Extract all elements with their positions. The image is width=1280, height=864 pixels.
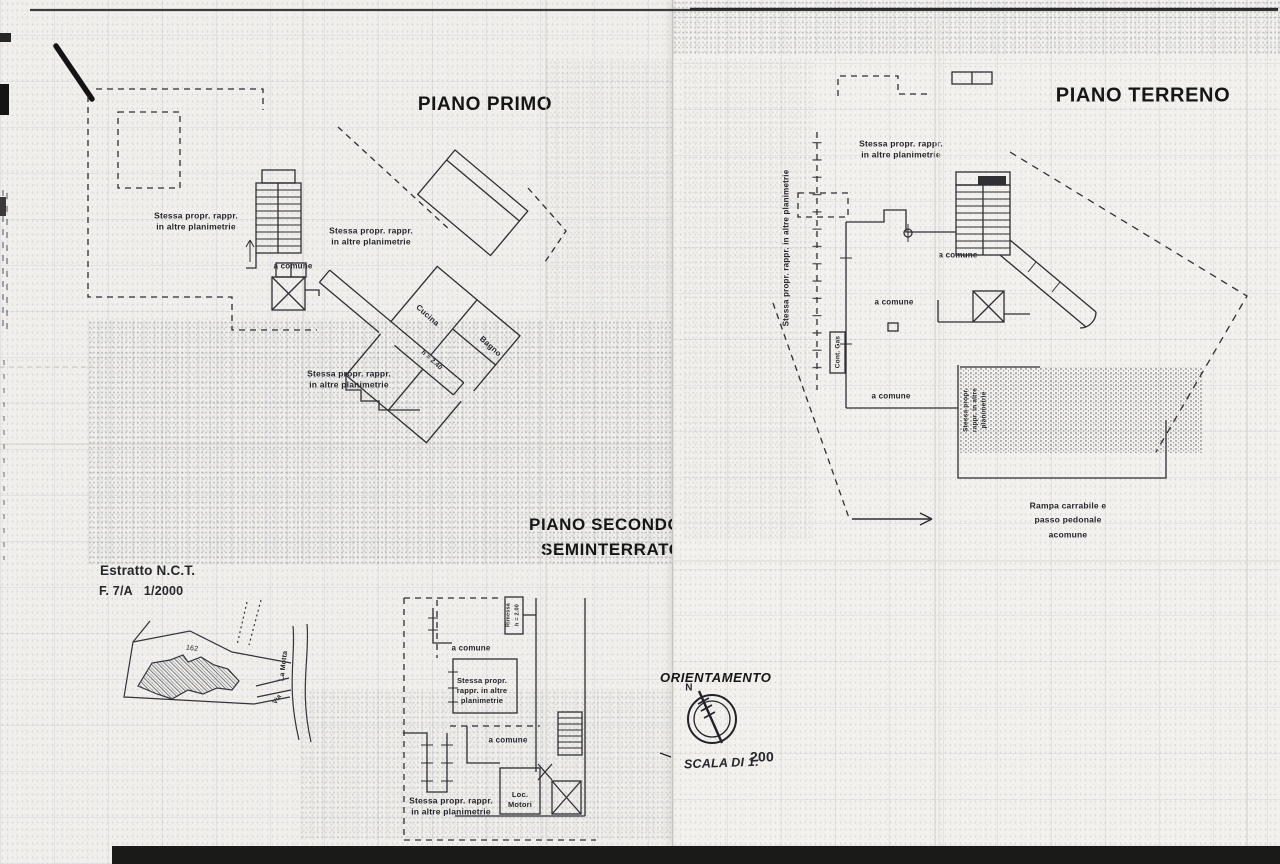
- piano-primo-title: PIANO PRIMO: [418, 92, 552, 118]
- label-a-comune: a comune: [872, 392, 911, 403]
- piano-secondo-title-line1: PIANO SECONDO: [529, 514, 672, 537]
- estratto-nct-title: Estratto N.C.T.: [100, 562, 195, 580]
- label-stessa-propr: Stessa propr. rappr. in altre planimetri…: [457, 676, 508, 706]
- label-stessa-propr: Stessa propr. rappr. in altre planimetri…: [307, 369, 391, 392]
- estratto-nct-reference: F. 7/A 1/2000: [99, 583, 183, 600]
- scanned-planimetry-sheet: PIANO PRIMO Stessa propr. rappr. in altr…: [0, 0, 1280, 864]
- label-a-comune: a comune: [939, 251, 978, 262]
- label-stessa-propr: Stessa propr. rappr. in altre planimetri…: [329, 226, 413, 249]
- scan-stipple-band: [683, 60, 813, 540]
- label-a-comune: a comune: [489, 736, 528, 747]
- paper-grid-texture: [0, 0, 672, 864]
- piano-secondo-title-line2: SEMINTERRATO: [541, 539, 672, 562]
- map-street-name: La Motta: [277, 650, 290, 681]
- paper-noise-texture: [0, 0, 672, 864]
- room-label-bagno: Bagno: [477, 334, 503, 359]
- map-parcel-number: 162: [185, 643, 198, 654]
- label-cont-gas: Cont. Gas: [835, 336, 844, 369]
- label-stessa-propr: Stessa propr. rappr. in altre planimetri…: [154, 211, 238, 234]
- right-scanned-page: PIANO TERRENO Stessa propr. rappr. in al…: [672, 0, 1280, 846]
- label-rimessa: Rimessa h = 2.00: [505, 603, 524, 627]
- label-a-comune: a comune: [452, 644, 491, 655]
- label-stessa-propr: Stessa propr. rappr. in altre planimetri…: [859, 139, 943, 162]
- left-scanned-page: PIANO PRIMO Stessa propr. rappr. in altr…: [0, 0, 672, 864]
- label-rampa-carrabile: Rampa carrabile e passo pedonale acomune: [1030, 498, 1107, 541]
- scan-stipple-band: [673, 0, 1280, 55]
- label-a-comune: a comune: [875, 298, 914, 309]
- label-stessa-propr-vertical: Stessa propr. rappr. in altre planimetri…: [961, 388, 988, 432]
- scan-stipple-band: [545, 60, 672, 320]
- room-label-cucina: Cucina: [413, 303, 441, 330]
- map-street-prefix: Via: [271, 693, 284, 706]
- piano-terreno-title: PIANO TERRENO: [1056, 83, 1230, 110]
- label-a-comune: a comune: [274, 262, 313, 273]
- scan-bottom-band: [112, 846, 1280, 864]
- room-height-note: h = 2.40: [419, 349, 444, 373]
- label-stessa-propr: Stessa propr. rappr. in altre planimetri…: [409, 796, 493, 819]
- room-label-loc-motori: Loc. Motori: [508, 790, 532, 810]
- label-stessa-propr-vertical: Stessa propr. rappr. in altre planimetri…: [782, 170, 793, 327]
